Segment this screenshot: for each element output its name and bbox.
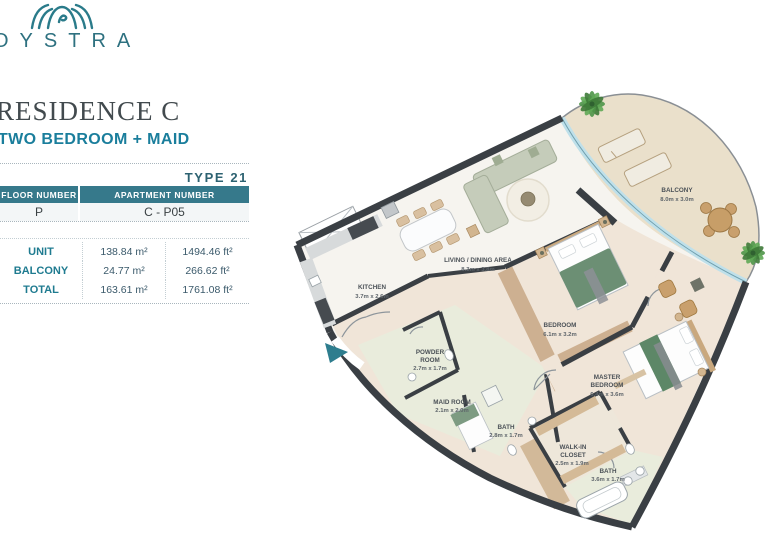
svg-text:8.3m x 3.8m: 8.3m x 3.8m <box>461 267 494 273</box>
area-row-total: TOTAL 163.61 m² 1761.08 ft² <box>0 280 249 299</box>
floor-number-header: FLOOR NUMBER <box>0 186 78 203</box>
floor-number-value: P <box>0 203 78 221</box>
svg-text:3.7m x 2.6m: 3.7m x 2.6m <box>355 294 388 300</box>
brand-name: OYSTRA <box>0 30 141 53</box>
total-label: TOTAL <box>0 284 82 296</box>
unit-imperial: 1494.46 ft² <box>166 246 249 258</box>
apartment-number-header: APARTMENT NUMBER <box>80 186 249 203</box>
svg-text:6.4m x 3.6m: 6.4m x 3.6m <box>590 392 623 398</box>
svg-text:2.8m x 1.7m: 2.8m x 1.7m <box>489 433 522 439</box>
room-label-kitchen: KITCHEN <box>358 284 386 291</box>
divider <box>0 163 249 164</box>
area-row-unit: UNIT 138.84 m² 1494.46 ft² <box>0 242 249 261</box>
svg-text:2.1m x 2.0m: 2.1m x 2.0m <box>435 408 468 414</box>
info-table-row: P C - P05 <box>0 203 249 222</box>
room-label-balcony: BALCONY <box>661 187 693 194</box>
balcony-label: BALCONY <box>0 265 82 277</box>
balcony-table <box>708 208 732 232</box>
info-table: FLOOR NUMBER APARTMENT NUMBER P C - P05 <box>0 186 249 222</box>
coffee-table <box>521 192 535 206</box>
svg-text:3.6m x 1.7m: 3.6m x 1.7m <box>591 477 624 483</box>
page-title: RESIDENCE C <box>0 96 180 127</box>
unit-label: UNIT <box>0 246 82 258</box>
room-label-powder: POWDER <box>416 349 445 356</box>
unit-metric: 138.84 m² <box>82 242 166 261</box>
svg-text:8.0m x 3.0m: 8.0m x 3.0m <box>660 197 693 203</box>
type-label: TYPE 21 <box>0 170 248 185</box>
room-label-masterbath: BATH <box>599 468 616 475</box>
svg-text:2.5m x 1.9m: 2.5m x 1.9m <box>555 461 588 467</box>
total-imperial: 1761.08 ft² <box>166 284 249 296</box>
room-label-bedroom: BEDROOM <box>544 322 577 329</box>
total-metric: 163.61 m² <box>82 280 166 299</box>
page-subtitle: TWO BEDROOM + MAID <box>0 131 190 149</box>
apartment-number-value: C - P05 <box>80 203 249 221</box>
area-table: UNIT 138.84 m² 1494.46 ft² BALCONY 24.77… <box>0 238 249 304</box>
svg-text:6.1m x 3.2m: 6.1m x 3.2m <box>543 332 576 338</box>
room-label-closet: WALK-IN <box>560 444 587 451</box>
info-table-header: FLOOR NUMBER APARTMENT NUMBER <box>0 186 249 203</box>
balcony-imperial: 266.62 ft² <box>166 265 249 277</box>
balcony-metric: 24.77 m² <box>82 261 166 280</box>
room-label-maid: MAID ROOM <box>433 399 470 406</box>
svg-text:ROOM: ROOM <box>420 357 440 364</box>
svg-text:CLOSET: CLOSET <box>560 452 586 459</box>
svg-text:2.7m x 1.7m: 2.7m x 1.7m <box>413 366 446 372</box>
area-row-balcony: BALCONY 24.77 m² 266.62 ft² <box>0 261 249 280</box>
brand-logo-icon <box>26 2 98 30</box>
room-label-bath: BATH <box>497 424 514 431</box>
svg-text:BEDROOM: BEDROOM <box>591 382 624 389</box>
floorplan-page: { "brand": { "name": "OYSTRA" }, "header… <box>0 0 770 535</box>
room-label-master: MASTER <box>594 374 621 381</box>
room-label-living: LIVING / DINING AREA <box>444 257 512 264</box>
